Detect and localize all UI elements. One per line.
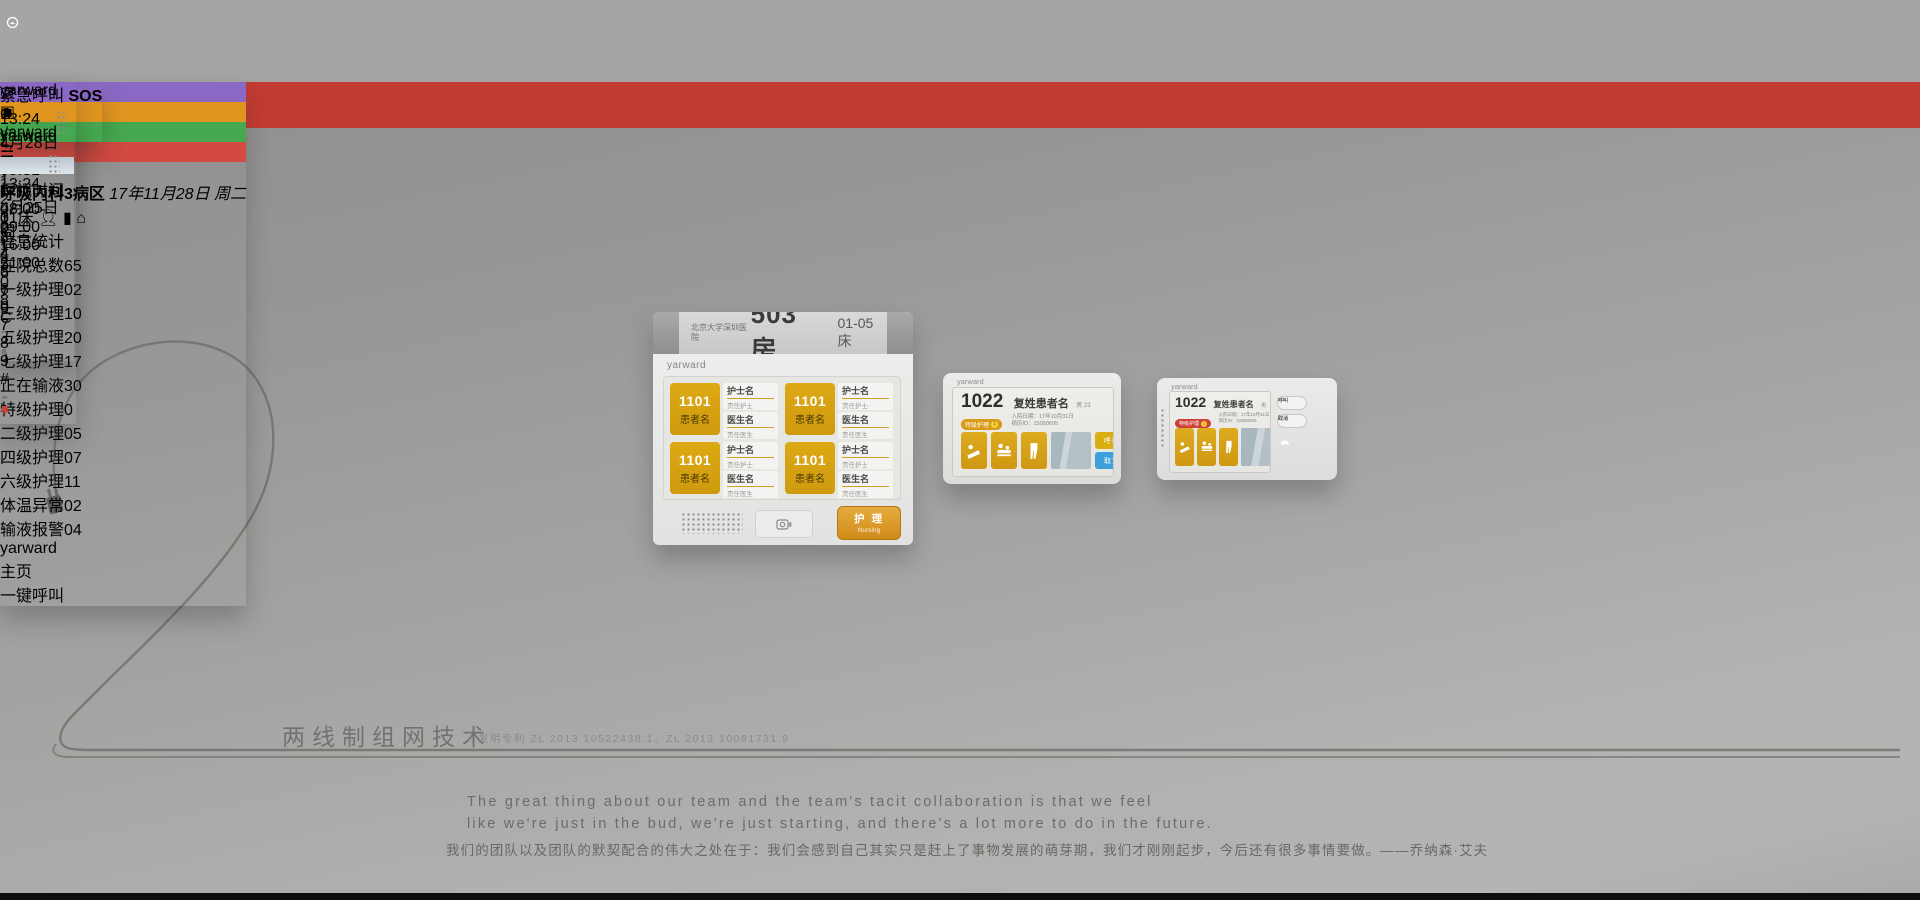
header-end-cap <box>653 312 679 354</box>
call-button[interactable]: 呼叫 <box>1095 432 1114 449</box>
header-end-cap <box>887 312 913 354</box>
quote-line-1: The great thing about our team and the t… <box>467 794 1153 810</box>
doctor-role: 责任医生 <box>727 429 774 439</box>
section-title: 两线制组网技术 <box>282 718 492 752</box>
nurse-call-button[interactable] <box>0 343 13 361</box>
speaker-grill <box>681 512 743 534</box>
camera-button[interactable] <box>755 510 813 538</box>
cancel-button[interactable]: 取消 <box>1277 414 1307 428</box>
nurse-role: 责任护士 <box>727 400 774 410</box>
handset-icon <box>0 328 8 336</box>
wallpaper-image <box>0 157 74 174</box>
bottom-black-bar <box>0 893 1920 900</box>
nurse-name: 护士名 <box>727 384 774 399</box>
recline-care-icon[interactable] <box>961 432 987 469</box>
sos-button[interactable]: 紧急呼叫 SOS <box>0 82 102 106</box>
brand-logo: yarward <box>957 377 984 386</box>
speaker-grill <box>1160 408 1165 448</box>
handset-icon <box>6 16 19 29</box>
handset-icon <box>0 393 9 402</box>
record-id: 病历ID：15050605 <box>1011 421 1073 428</box>
one-key-call-button[interactable]: 一键呼叫 <box>0 582 246 606</box>
patient-photo <box>1051 432 1091 469</box>
patient-name: 患者名 <box>680 411 710 426</box>
home-icon: ⌂ <box>76 210 86 227</box>
patient-card[interactable]: 1101患者名 护士名责任护士 医生名责任医生 <box>670 442 778 494</box>
hero-banner: 两线制组网技术 发明专利 ZL 2013 10522438.1、ZL 2013 … <box>0 0 1920 900</box>
brand-logo: yarward <box>0 128 74 146</box>
corridor-display: 北京大学深圳医院 503房 01-05床 yarward 1101患者名 护士名… <box>653 312 913 545</box>
room-number: 503房 <box>751 312 824 354</box>
bedside-terminal-b: yarward 13:24 4月25日 周三 1 2 3 * 4 5 6 0 7 <box>0 128 74 361</box>
assist-care-icon[interactable] <box>1197 428 1216 466</box>
quote-line-2: like we're just in the bud, we're just s… <box>467 816 1213 832</box>
handset-icon <box>1279 437 1291 449</box>
nurse-call-button[interactable] <box>0 402 20 424</box>
patent-numbers: 发明专利 ZL 2013 10522438.1、ZL 2013 10081731… <box>478 731 789 746</box>
patient-card-grid: 1101患者名 护士名责任护士 医生名责任医生 1101患者名 护士名责任护士 … <box>663 376 901 500</box>
mobility-icon[interactable] <box>1021 432 1047 469</box>
bed-range: 01-05床 <box>838 315 887 351</box>
clock: 13:24 <box>0 176 74 194</box>
corridor-header: 北京大学深圳医院 503房 01-05床 <box>653 312 913 354</box>
patient-meta: 男 23 <box>1076 403 1090 409</box>
door-display-b: yarward 1022 复姓患者名 男 23 特级护理1 入院日期：17年10… <box>1157 378 1337 480</box>
brand-logo: yarward <box>667 360 706 371</box>
door-display-a: yarward 1022 复姓患者名 男 23 特级护理1 入院日期：17年10… <box>943 373 1121 484</box>
date-text: 17年11月28日 周二 <box>109 186 246 203</box>
talk-button[interactable] <box>0 389 20 402</box>
patient-card[interactable]: 1101患者名 护士名责任护士 医生名责任医生 <box>670 383 778 435</box>
speaker-grill <box>48 154 60 180</box>
mobility-icon[interactable] <box>1219 428 1238 466</box>
recline-care-icon[interactable] <box>1175 428 1194 466</box>
care-level-badge: 特级护理1 <box>961 419 1002 430</box>
room-number: 1022 <box>961 391 1003 412</box>
quote-line-3: 我们的团队以及团队的默契配合的伟大之处在于：我们会感到自己其实只是赶上了事物发展… <box>446 839 1488 859</box>
hospital-name: 北京大学深圳医院 <box>691 323 749 342</box>
doctor-name: 医生名 <box>727 413 774 428</box>
key-hash[interactable]: # <box>0 371 76 389</box>
care-level-badge: 特级护理1 <box>1175 419 1211 428</box>
key-c[interactable]: C <box>0 314 15 323</box>
patient-card[interactable]: 1101患者名 护士名责任护士 医生名责任医生 <box>785 383 893 435</box>
reset-button[interactable]: C <box>0 106 102 124</box>
patient-card[interactable]: 1101患者名 护士名责任护士 医生名责任医生 <box>785 442 893 494</box>
call-handset-button[interactable] <box>1279 436 1303 472</box>
camera-icon <box>0 146 11 157</box>
home-button[interactable]: 主页 <box>0 558 246 582</box>
cancel-button[interactable]: 取消 <box>1095 452 1114 469</box>
brand-logo: yarward <box>1171 382 1198 391</box>
bed-number: 1101 <box>679 393 711 409</box>
nursing-button[interactable]: 护 理 Nursing <box>837 506 901 540</box>
brand-logo: yarward <box>0 540 57 557</box>
call-button[interactable]: 呼叫 <box>1277 396 1307 410</box>
assist-care-icon[interactable] <box>991 432 1017 469</box>
bell-icon <box>0 348 8 356</box>
patient-photo <box>1241 428 1271 466</box>
pendant-call-button[interactable] <box>6 16 30 46</box>
patient-name: 复姓患者名 <box>1014 398 1069 410</box>
bell-icon <box>0 405 10 415</box>
camera-icon <box>776 518 792 530</box>
